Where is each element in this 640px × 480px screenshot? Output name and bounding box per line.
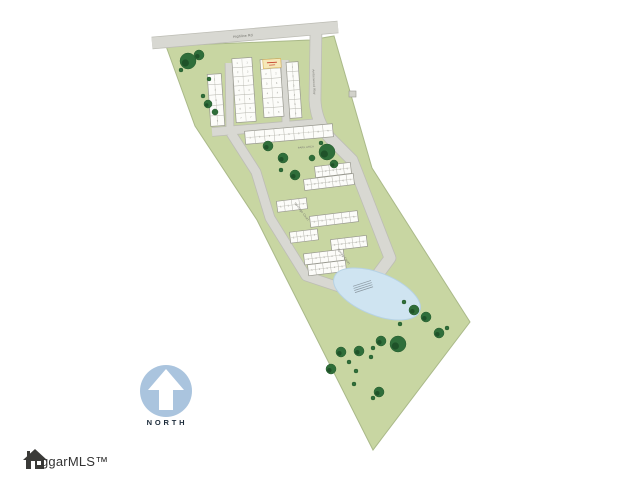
tree-icon-shade [410, 309, 415, 314]
tree-icon-shade [435, 332, 440, 337]
tree-icon-shade [264, 145, 269, 150]
tree-icon [347, 360, 351, 364]
tree-icon [445, 326, 449, 330]
tree-icon [352, 382, 356, 386]
tree-icon [354, 369, 358, 373]
road-cluster-lane-2 [285, 60, 286, 127]
tree-icon-shade [392, 342, 399, 349]
tree-icon-shade [327, 368, 332, 373]
north-arrow: NORTH [140, 365, 192, 427]
site-structure [349, 91, 356, 97]
mls-logo: ggarMLS™ [22, 448, 108, 470]
tree-icon-shade [321, 150, 328, 157]
tree-icon-shade [279, 157, 284, 162]
map-layers: 1234511223344556677112233445566123456123… [152, 27, 470, 450]
north-label: NORTH [147, 418, 188, 427]
tree-icon-shade [355, 350, 360, 355]
site-plan-canvas: 1234511223344556677112233445566123456123… [0, 0, 640, 480]
tree-icon [319, 141, 323, 145]
road-cluster-lane-1 [229, 63, 230, 131]
tree-icon [402, 300, 406, 304]
mls-logo-text: ggarMLS™ [41, 455, 108, 470]
tree-icon [212, 109, 218, 115]
tree-icon-shade [182, 59, 189, 66]
tree-icon [179, 68, 183, 72]
tree-icon-shade [195, 54, 200, 59]
tree-icon [371, 396, 375, 400]
building-row: 11223344556677 [232, 57, 256, 122]
tree-icon-shade [337, 351, 342, 356]
highlighted-lot [263, 58, 282, 68]
tree-icon [371, 346, 375, 350]
highlighted-lot-rect [263, 58, 282, 68]
tree-icon-shade [375, 391, 380, 396]
tree-icon [201, 94, 205, 98]
tree-icon [279, 168, 283, 172]
site-plan-map: 1234511223344556677112233445566123456123… [0, 0, 640, 480]
tree-icon [207, 77, 211, 81]
tree-icon-shade [331, 163, 335, 167]
tree-icon [309, 155, 315, 161]
tree-icon-shade [205, 103, 209, 107]
tree-icon [398, 322, 402, 326]
tree-icon-shade [291, 174, 296, 179]
tree-icon [369, 355, 373, 359]
tree-icon-shade [377, 340, 382, 345]
tree-icon-shade [422, 316, 427, 321]
